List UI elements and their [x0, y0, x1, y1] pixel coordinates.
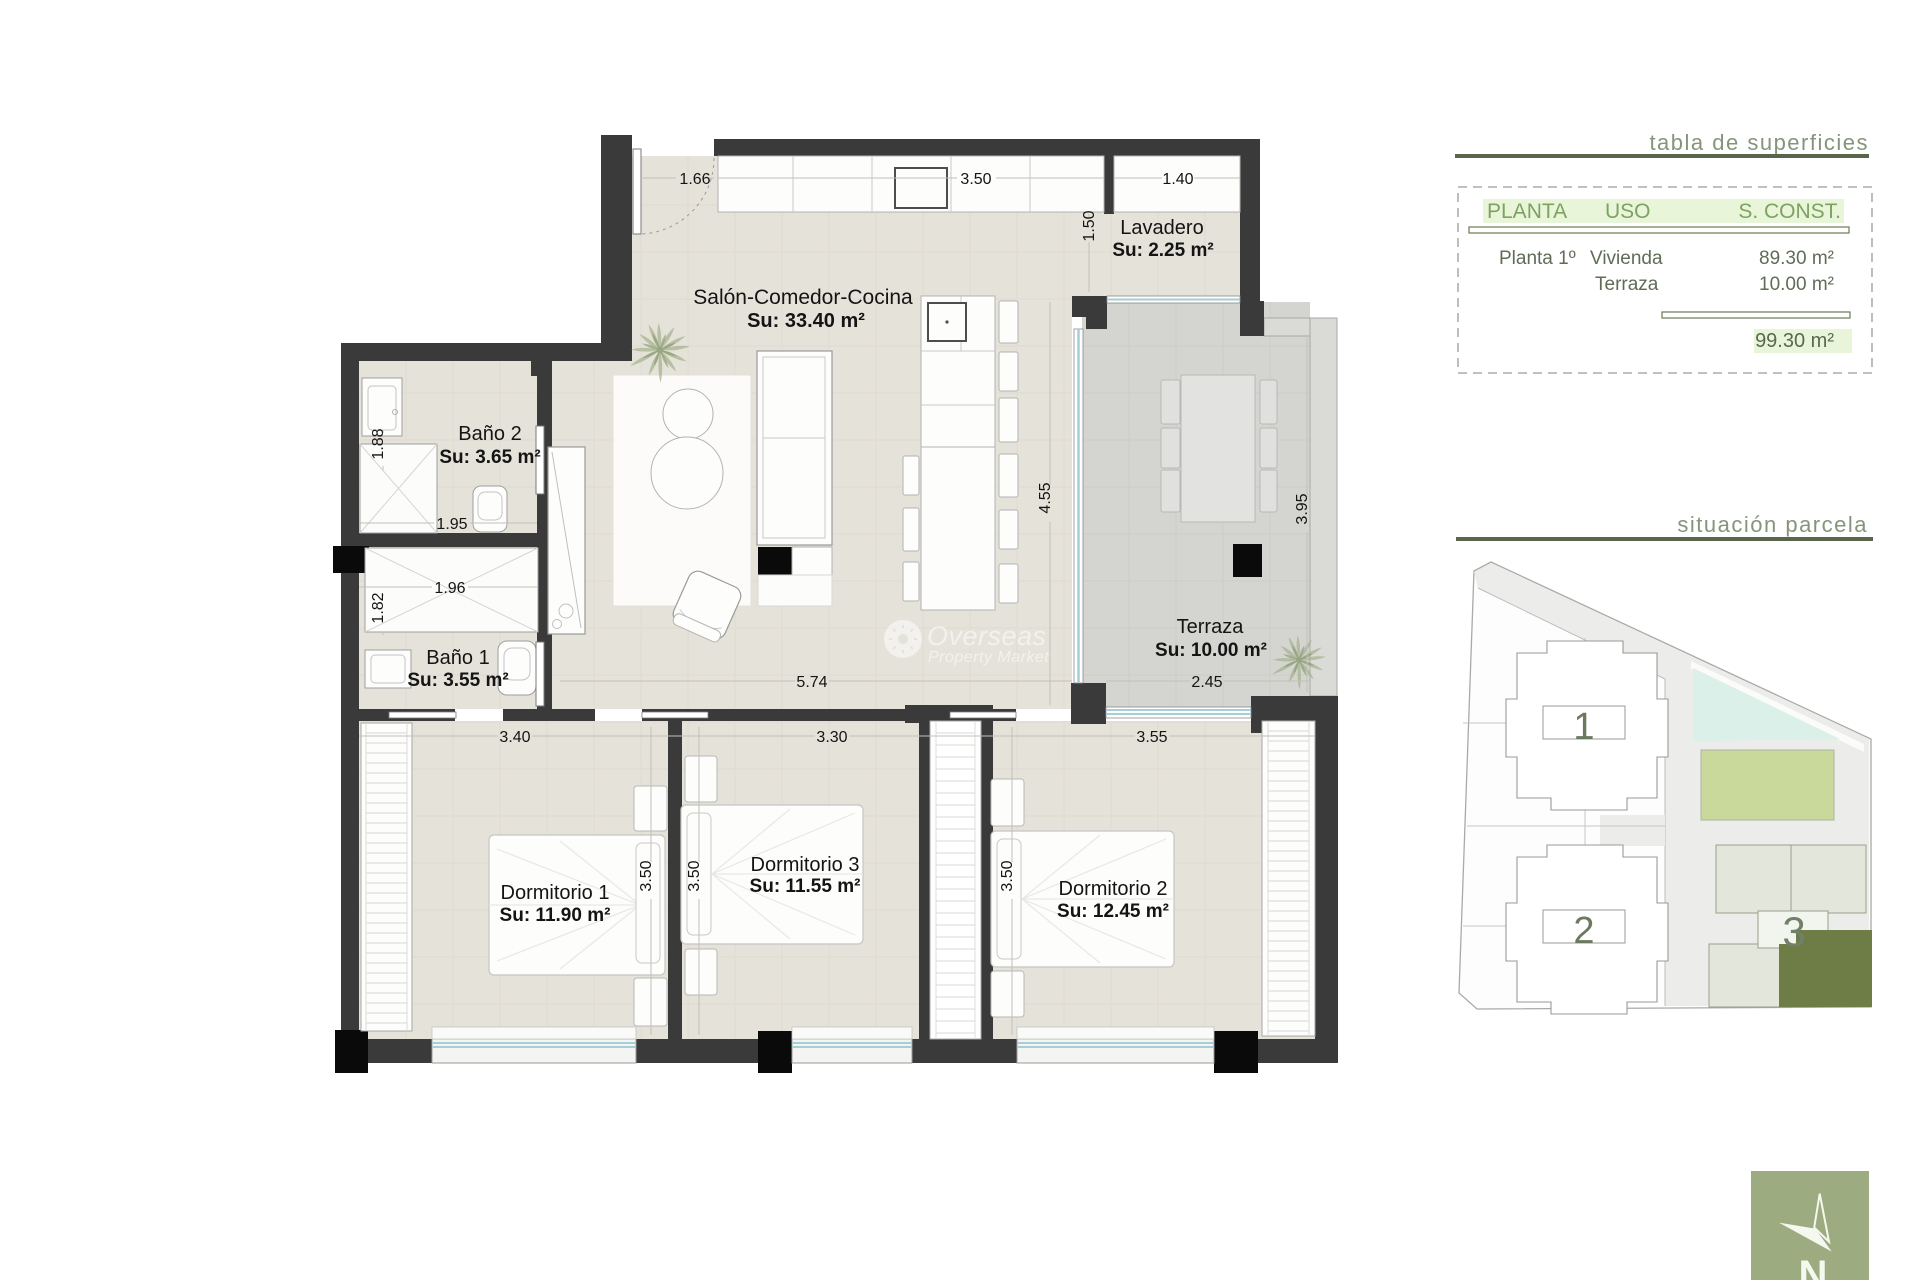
svg-text:3: 3 [1782, 908, 1805, 955]
svg-text:Dormitorio 1: Dormitorio 1 [501, 882, 610, 904]
svg-text:5.74: 5.74 [796, 674, 827, 691]
svg-text:situación parcela: situación parcela [1677, 512, 1868, 537]
svg-text:tabla de superficies: tabla de superficies [1649, 130, 1869, 155]
svg-text:Vivienda: Vivienda [1590, 248, 1663, 269]
svg-text:Property Market: Property Market [928, 649, 1049, 666]
svg-text:Dormitorio 3: Dormitorio 3 [751, 854, 860, 876]
svg-text:S. CONST.: S. CONST. [1738, 200, 1841, 223]
svg-text:Su: 10.00 m²: Su: 10.00 m² [1155, 640, 1267, 661]
svg-text:1.66: 1.66 [679, 171, 710, 188]
svg-text:USO: USO [1605, 200, 1651, 223]
svg-text:4.55: 4.55 [1037, 482, 1054, 513]
svg-text:3.95: 3.95 [1294, 493, 1311, 524]
svg-text:Su: 12.45 m²: Su: 12.45 m² [1057, 901, 1169, 922]
svg-text:3.50: 3.50 [686, 860, 703, 891]
svg-text:1.88: 1.88 [370, 428, 387, 459]
svg-text:3.30: 3.30 [816, 729, 847, 746]
svg-text:PLANTA: PLANTA [1487, 200, 1567, 223]
svg-text:Overseas: Overseas [927, 621, 1047, 651]
svg-text:3.55: 3.55 [1136, 729, 1167, 746]
svg-text:10.00 m²: 10.00 m² [1759, 274, 1834, 295]
svg-text:Planta 1º: Planta 1º [1499, 248, 1576, 269]
svg-text:2.45: 2.45 [1191, 674, 1222, 691]
svg-text:Su: 2.25 m²: Su: 2.25 m² [1112, 240, 1213, 261]
svg-text:Su: 3.55 m²: Su: 3.55 m² [407, 670, 508, 691]
svg-text:Baño 1: Baño 1 [426, 647, 489, 669]
svg-text:Su: 11.55 m²: Su: 11.55 m² [750, 876, 861, 897]
svg-text:Lavadero: Lavadero [1120, 217, 1203, 239]
svg-text:1.40: 1.40 [1162, 171, 1193, 188]
svg-text:2: 2 [1573, 910, 1594, 952]
svg-text:1.50: 1.50 [1081, 210, 1098, 241]
svg-text:1.96: 1.96 [434, 580, 465, 597]
svg-text:Baño 2: Baño 2 [458, 423, 521, 445]
svg-text:1.95: 1.95 [436, 516, 467, 533]
svg-text:89.30 m²: 89.30 m² [1759, 248, 1834, 269]
svg-text:1.82: 1.82 [370, 592, 387, 623]
svg-text:3.50: 3.50 [638, 860, 655, 891]
svg-text:3.50: 3.50 [960, 171, 991, 188]
svg-text:Su: 33.40 m²: Su: 33.40 m² [747, 310, 865, 332]
svg-text:Dormitorio 2: Dormitorio 2 [1059, 878, 1168, 900]
svg-text:Terraza: Terraza [1595, 274, 1659, 295]
svg-text:Salón-Comedor-Cocina: Salón-Comedor-Cocina [693, 286, 913, 309]
svg-text:Su: 11.90 m²: Su: 11.90 m² [500, 905, 611, 926]
svg-text:1: 1 [1573, 706, 1594, 748]
svg-text:99.30 m²: 99.30 m² [1755, 330, 1834, 352]
svg-text:3.40: 3.40 [499, 729, 530, 746]
svg-text:Terraza: Terraza [1177, 616, 1245, 638]
svg-text:N: N [1799, 1253, 1828, 1280]
svg-text:3.50: 3.50 [999, 860, 1016, 891]
svg-text:Su: 3.65 m²: Su: 3.65 m² [439, 447, 540, 468]
